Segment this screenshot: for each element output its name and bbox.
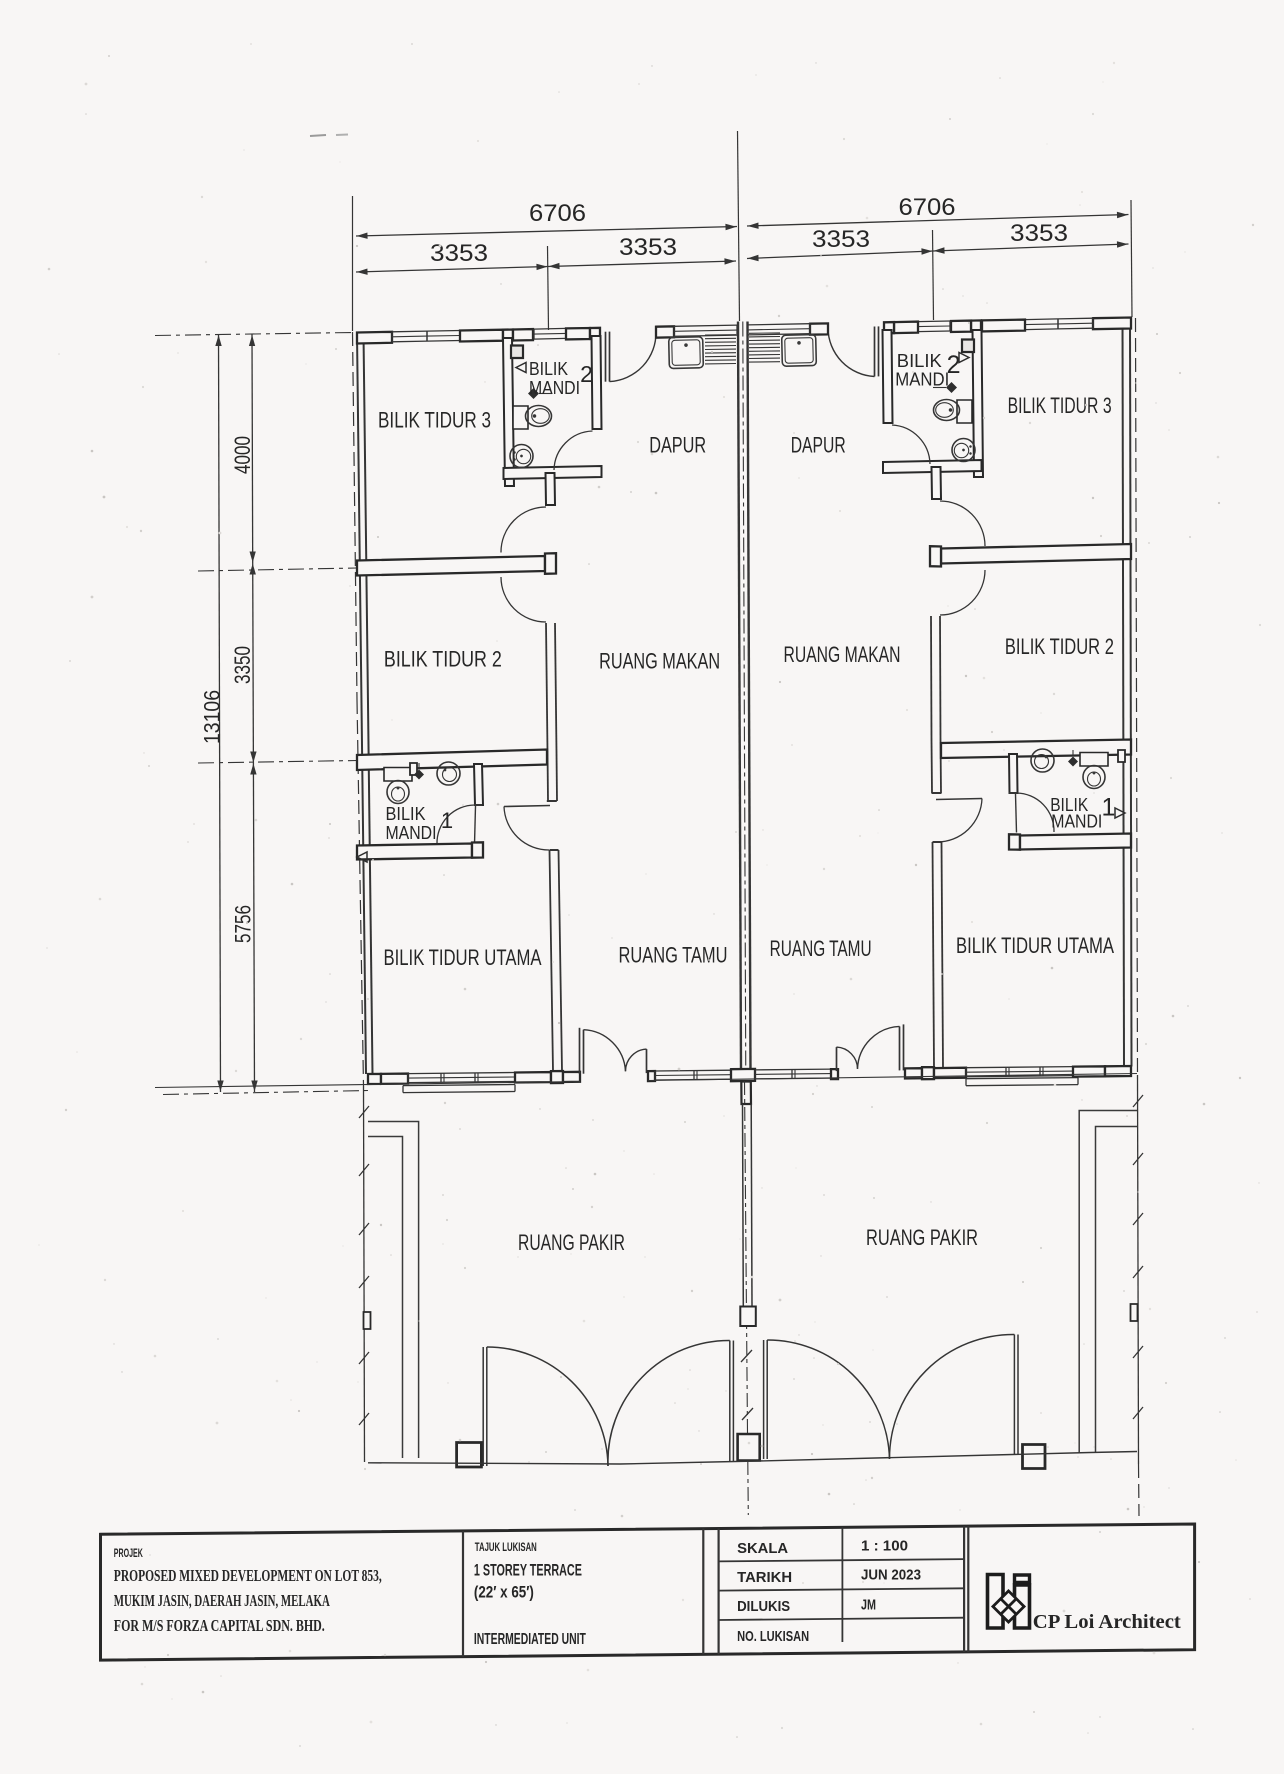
svg-text:CP Loi Architect: CP Loi Architect [1033,1611,1181,1633]
svg-text:DAPUR: DAPUR [649,433,706,458]
svg-text:FOR M/S FORZA CAPITAL SDN. BHD: FOR M/S FORZA CAPITAL SDN. BHD. [114,1616,325,1635]
svg-text:3353: 3353 [619,234,677,261]
svg-text:DAPUR: DAPUR [791,433,846,458]
svg-text:DILUKIS: DILUKIS [737,1598,790,1615]
svg-text:BILIK TIDUR UTAMA: BILIK TIDUR UTAMA [384,945,542,970]
svg-text:3353: 3353 [812,226,870,253]
svg-text:MUKIM JASIN, DAERAH JASIN, MEL: MUKIM JASIN, DAERAH JASIN, MELAKA [114,1591,330,1610]
svg-text:3350: 3350 [230,646,255,684]
svg-text:(22′ x 65′): (22′ x 65′) [474,1583,534,1602]
svg-text:JM: JM [861,1597,876,1614]
svg-text:5756: 5756 [231,905,256,943]
svg-text:1: 1 [441,808,453,833]
svg-text:TARIKH: TARIKH [737,1569,792,1586]
svg-text:RUANG MAKAN: RUANG MAKAN [599,649,720,674]
svg-text:RUANG PAKIR: RUANG PAKIR [518,1230,625,1255]
svg-text:1 STOREY TERRACE: 1 STOREY TERRACE [474,1561,582,1580]
svg-text:6706: 6706 [899,194,956,221]
svg-text:INTERMEDIATED UNIT: INTERMEDIATED UNIT [474,1631,586,1648]
svg-text:2: 2 [580,361,593,387]
svg-text:SKALA: SKALA [737,1540,788,1557]
svg-text:BILIK TIDUR UTAMA: BILIK TIDUR UTAMA [956,933,1114,958]
svg-text:6706: 6706 [529,200,586,227]
svg-text:MANDI: MANDI [529,378,580,398]
svg-text:BILIK TIDUR 3: BILIK TIDUR 3 [1008,393,1112,418]
svg-text:3353: 3353 [430,240,488,267]
svg-text:NO. LUKISAN: NO. LUKISAN [737,1628,809,1645]
svg-text:BILIK TIDUR 2: BILIK TIDUR 2 [384,647,502,672]
svg-text:RUANG MAKAN: RUANG MAKAN [784,642,901,667]
svg-text:BILIK TIDUR 3: BILIK TIDUR 3 [378,408,491,433]
svg-text:BILIK: BILIK [386,804,426,824]
svg-text:BILIK: BILIK [897,351,942,371]
svg-text:13106: 13106 [200,690,225,744]
svg-text:1 : 100: 1 : 100 [861,1538,908,1555]
svg-text:PROJEK: PROJEK [114,1546,143,1560]
svg-text:MANDI: MANDI [386,823,437,843]
svg-text:PROPOSED MIXED DEVELOPMENT ON: PROPOSED MIXED DEVELOPMENT ON LOT 853, [114,1566,382,1585]
svg-text:JUN 2023: JUN 2023 [861,1567,921,1584]
svg-text:3353: 3353 [1010,220,1068,247]
svg-text:MANDI: MANDI [895,370,949,390]
svg-text:RUANG TAMU: RUANG TAMU [770,936,872,961]
svg-text:RUANG PAKIR: RUANG PAKIR [866,1225,978,1250]
svg-text:BILIK: BILIK [529,359,568,379]
svg-text:TAJUK LUKISAN: TAJUK LUKISAN [475,1540,537,1554]
svg-text:MANDI: MANDI [1051,812,1102,832]
svg-text:4000: 4000 [230,436,255,474]
svg-text:BILIK TIDUR 2: BILIK TIDUR 2 [1005,634,1114,659]
svg-text:1: 1 [1102,794,1116,822]
svg-text:RUANG TAMU: RUANG TAMU [619,943,728,968]
